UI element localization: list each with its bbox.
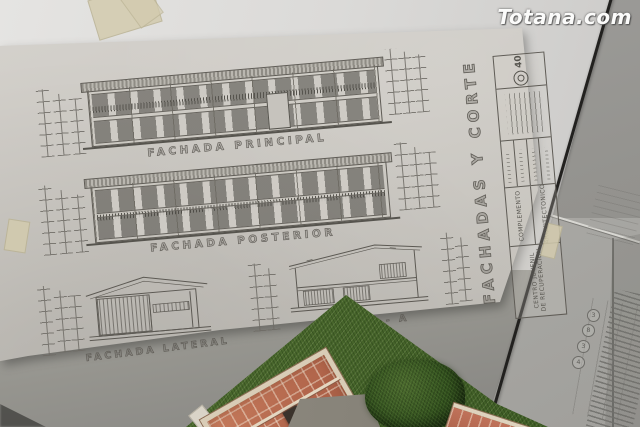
watermark-text: Totana.com: [497, 5, 632, 29]
title-block-project-cell: CENTRO JUVENIL DE RECUPERACION: [510, 241, 566, 318]
subtitle-line1: COMPLEMENTO: [514, 190, 526, 242]
sheet-content: FACHADA PRINCIPAL FACHADA POSTERIOR: [0, 6, 605, 387]
photo-of-architectural-drawings: 3 8 3 4 FACHADA PRINCIPAL: [0, 0, 640, 427]
dimension-chain: [69, 98, 87, 155]
title-block-stamp-cell: 40: [494, 53, 547, 89]
facade-lateral-drawing: [80, 265, 216, 348]
notes-microtext: [504, 91, 542, 135]
title-block-notes-cell: [496, 84, 550, 141]
title-block: CENTRO JUVENIL DE RECUPERACION COMPLEMEN…: [492, 51, 567, 319]
sheet-number: 40: [514, 55, 525, 68]
stamp-seal-icon: [512, 70, 528, 86]
dimension-chain: [52, 93, 70, 156]
title-block-info-cell: [501, 137, 555, 188]
dimension-chain: [55, 190, 74, 255]
dimension-chain: [71, 194, 89, 253]
